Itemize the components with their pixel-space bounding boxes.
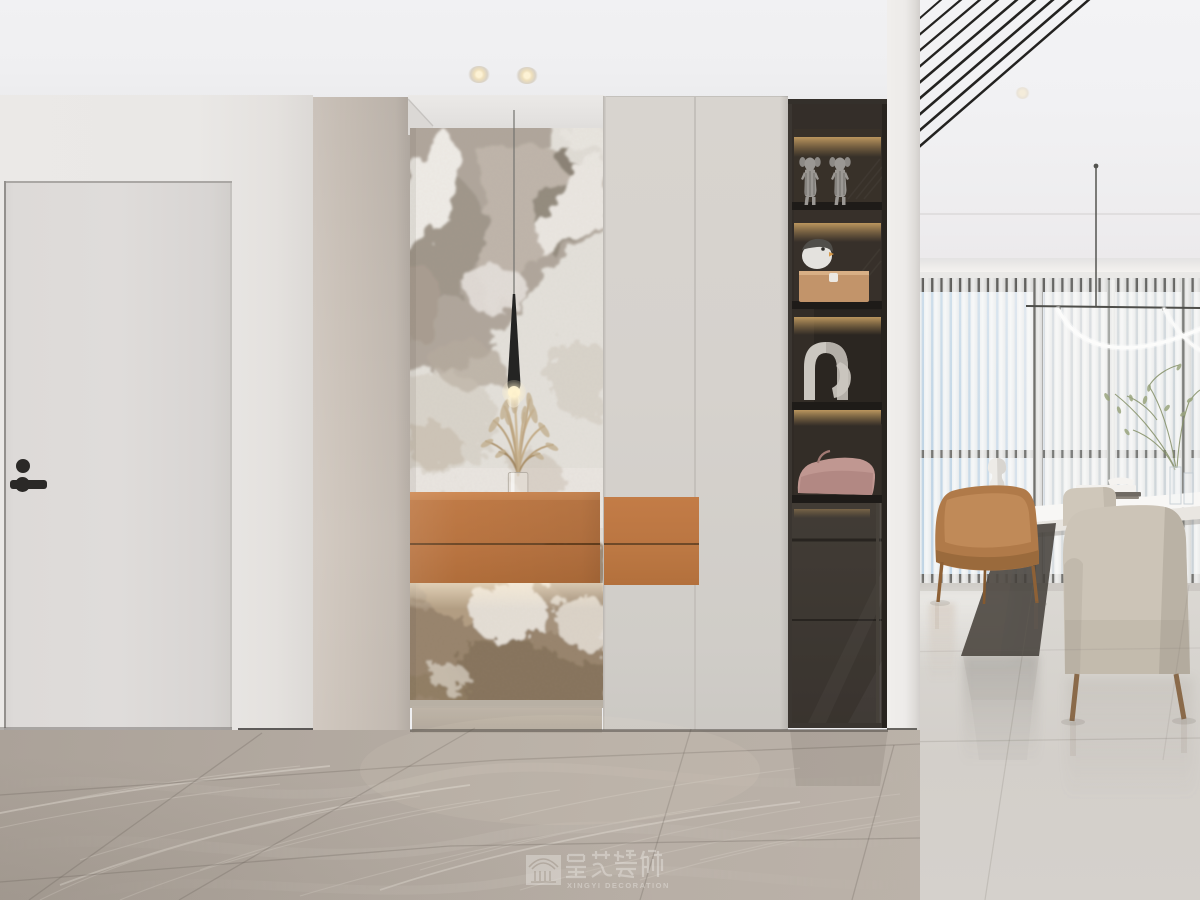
svg-text:XINGYI DECORATION: XINGYI DECORATION	[567, 881, 670, 890]
